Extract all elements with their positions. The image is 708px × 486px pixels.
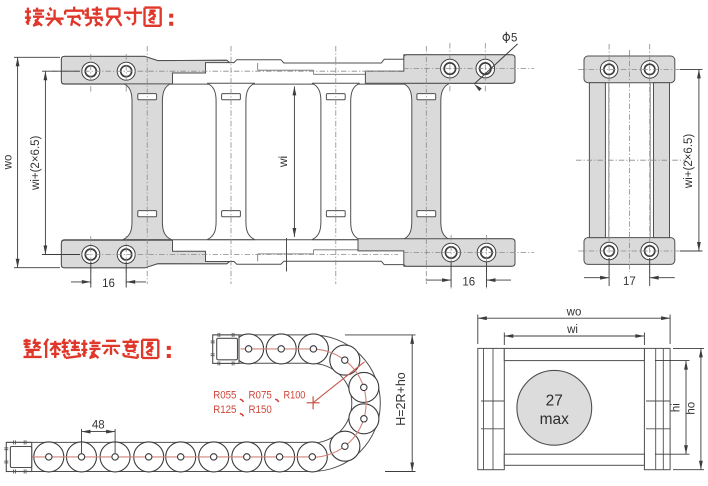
svg-text:17: 17: [623, 276, 636, 288]
svg-text:wo: wo: [566, 306, 582, 318]
svg-text:ho: ho: [685, 402, 697, 415]
svg-text:wi: wi: [566, 324, 578, 336]
svg-text:R125: R125: [213, 404, 236, 416]
svg-text:wi+(2×6.5): wi+(2×6.5): [30, 135, 42, 191]
svg-text:wi: wi: [276, 156, 290, 168]
svg-text:R150: R150: [249, 404, 272, 416]
svg-text:R055: R055: [213, 390, 236, 402]
svg-text:27: 27: [546, 393, 563, 410]
svg-text:16: 16: [462, 276, 475, 288]
svg-text:wo: wo: [3, 155, 15, 171]
svg-text:H=2R+ho: H=2R+ho: [394, 372, 408, 426]
svg-text:max: max: [540, 411, 570, 428]
svg-text:wi+(2×6.5): wi+(2×6.5): [683, 134, 695, 190]
svg-text:hi: hi: [670, 403, 682, 412]
svg-text:48: 48: [92, 420, 105, 432]
svg-text:R075: R075: [249, 390, 272, 402]
svg-text:5: 5: [511, 33, 517, 45]
svg-text:R100: R100: [284, 390, 306, 402]
svg-text:16: 16: [102, 278, 115, 290]
